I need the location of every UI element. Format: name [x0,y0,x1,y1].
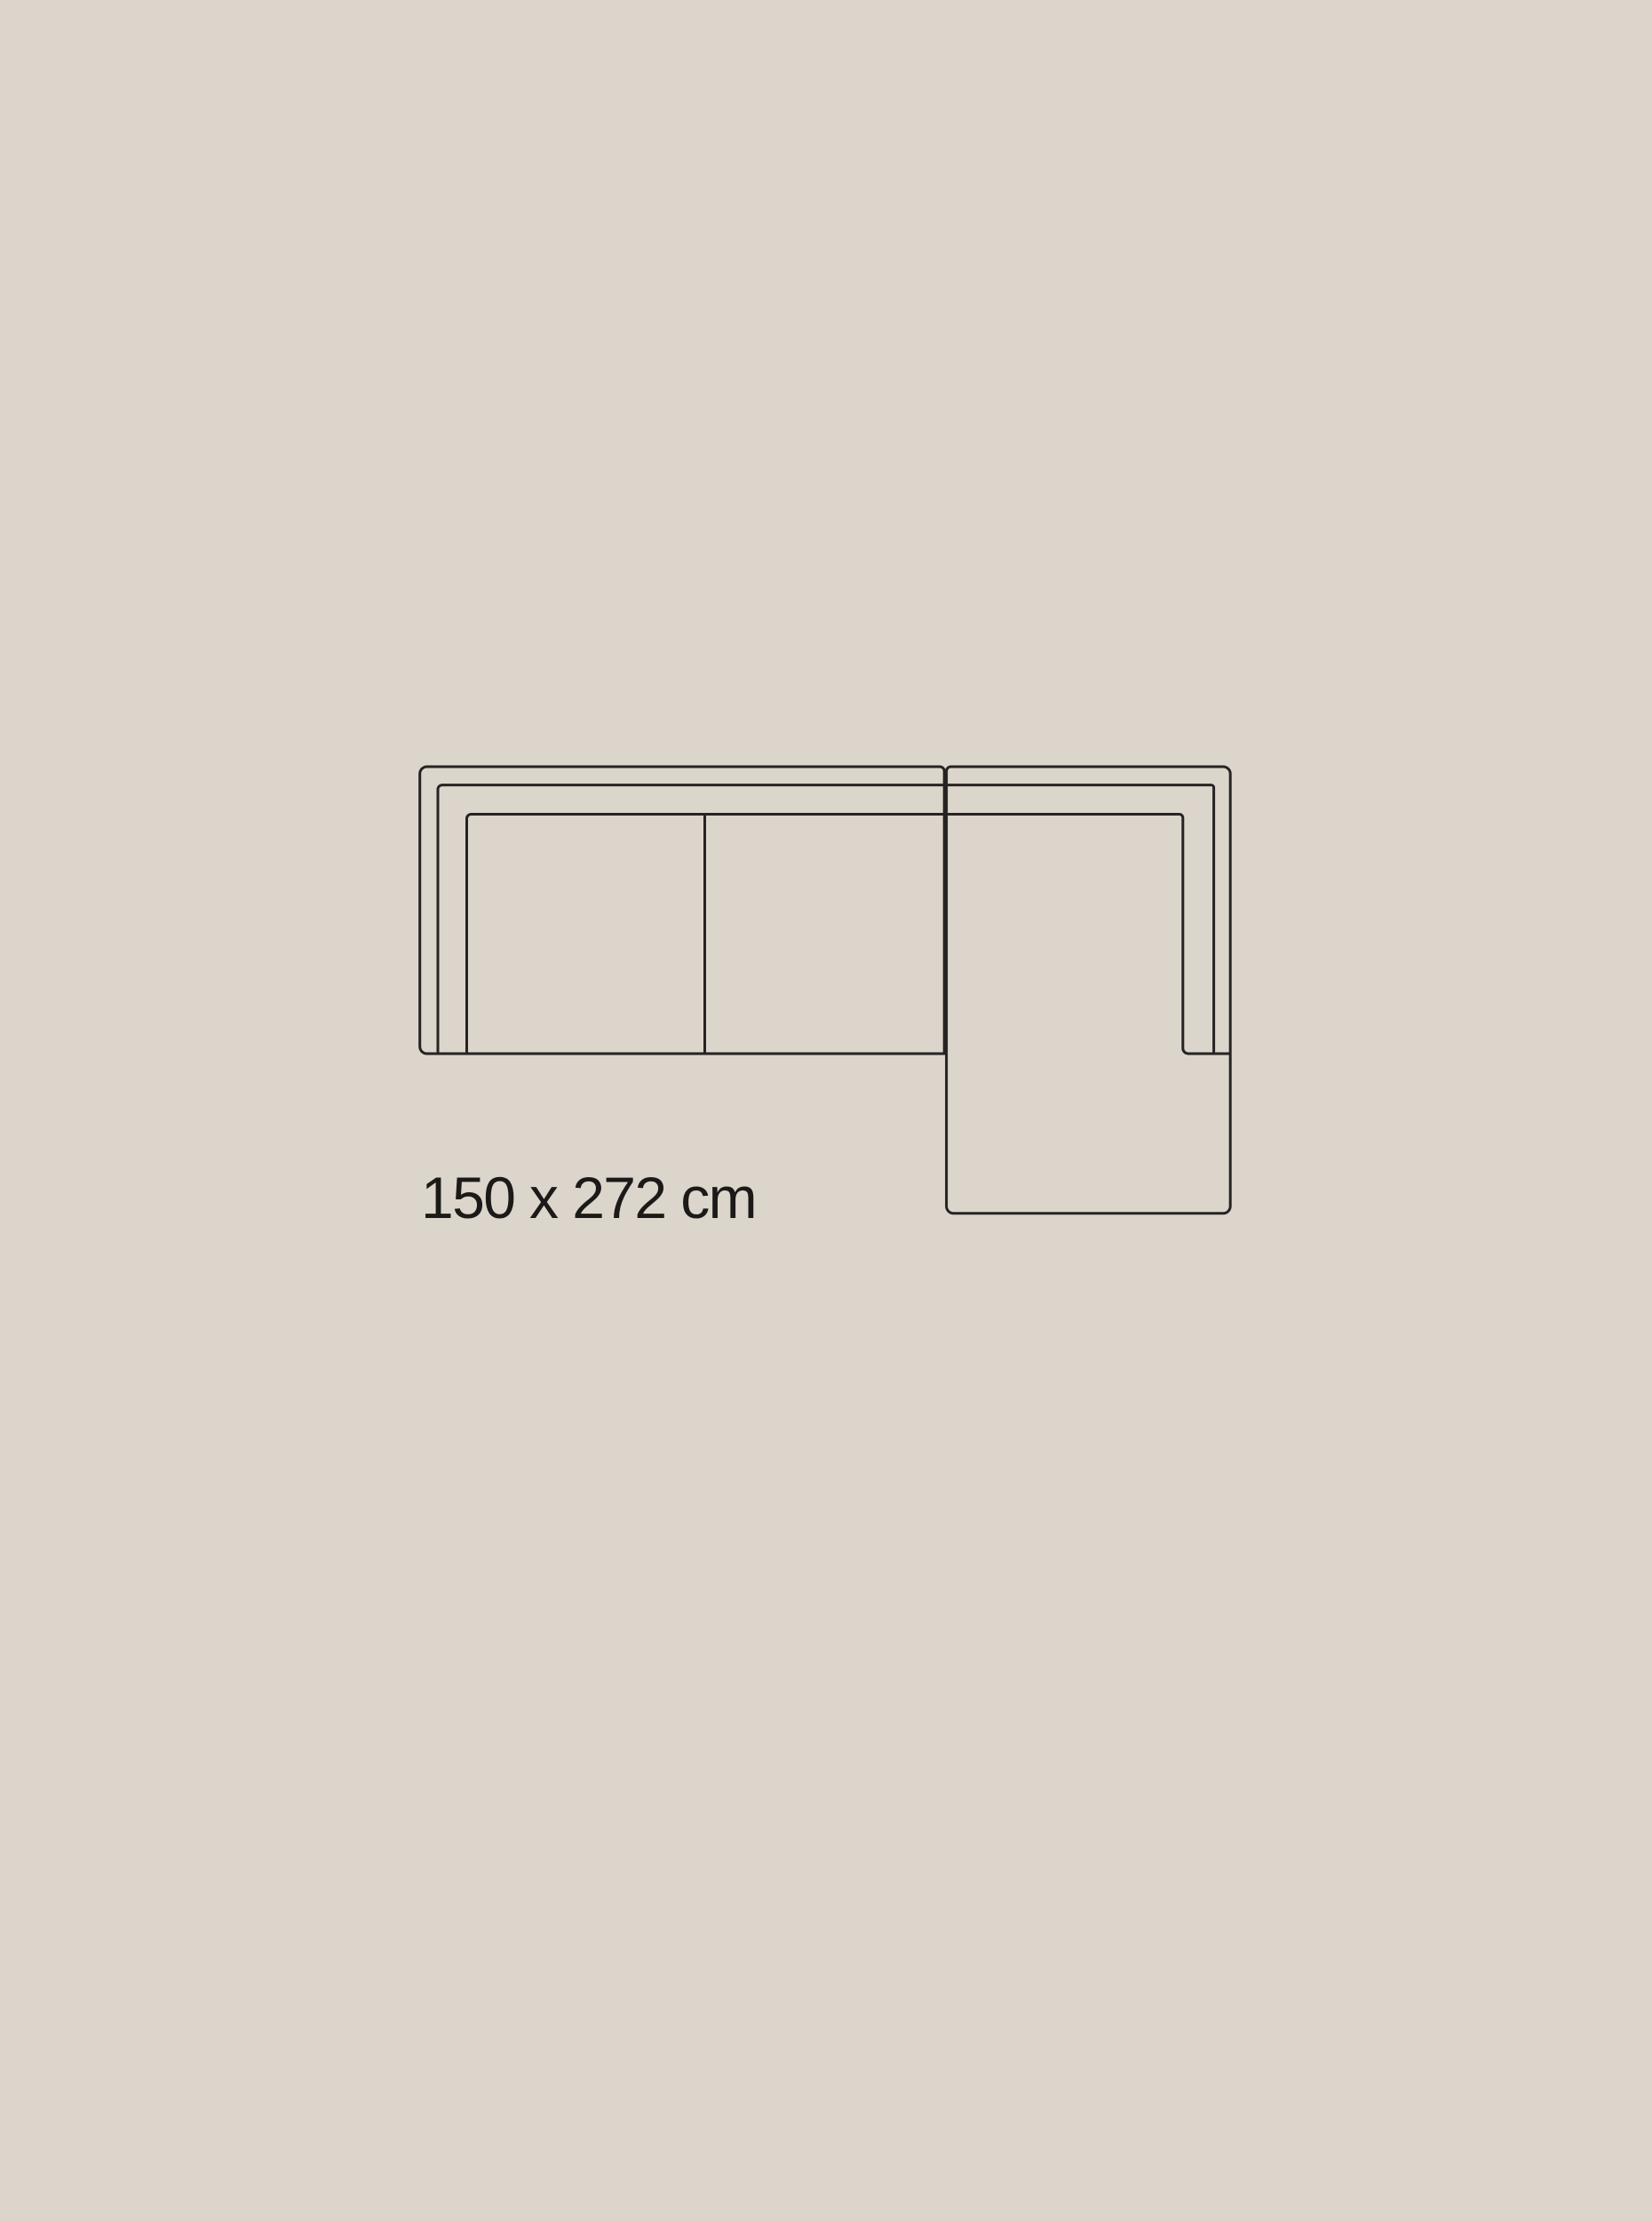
svg-text:150 x 272 cm: 150 x 272 cm [421,1165,756,1230]
